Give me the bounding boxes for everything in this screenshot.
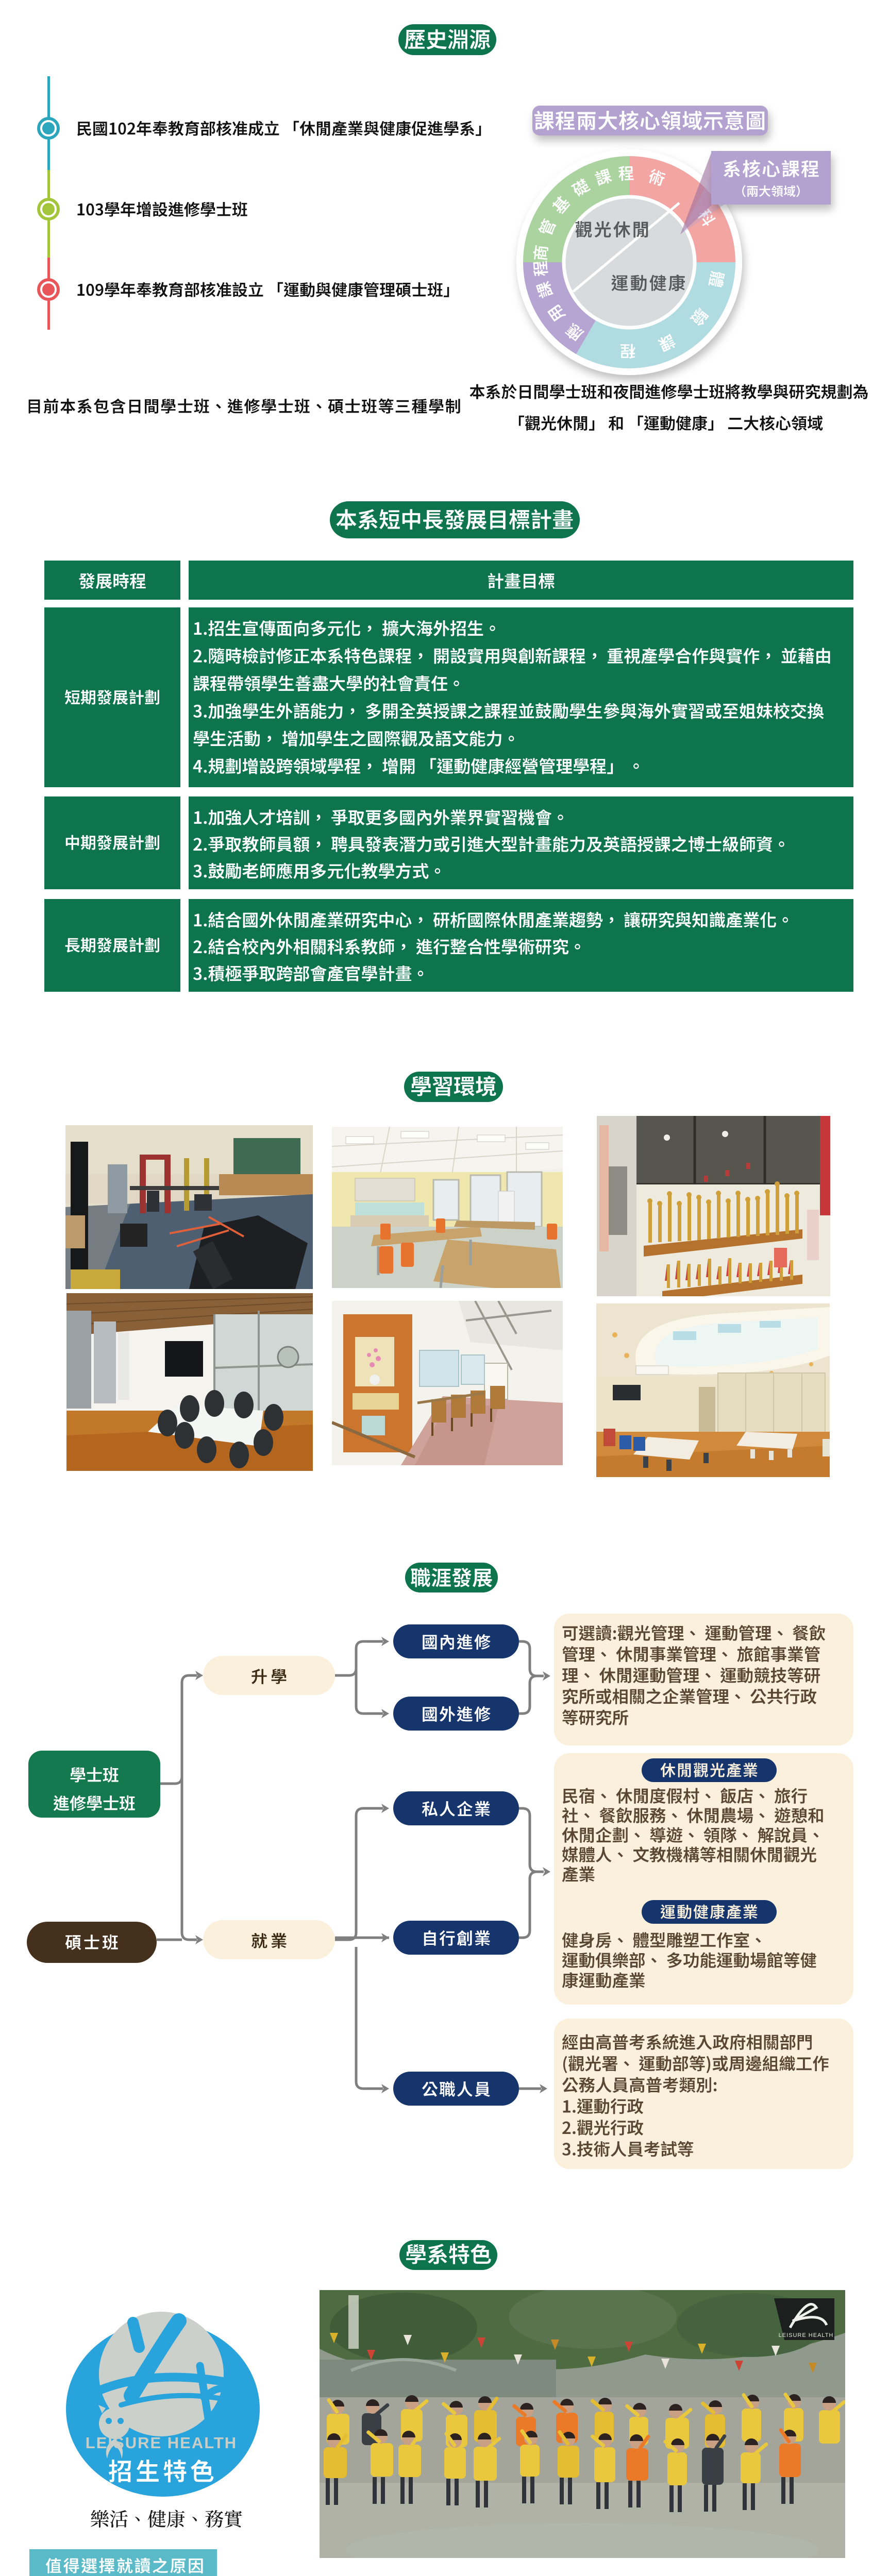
svg-text:LEISURE HEALTH: LEISURE HEALTH <box>779 2332 834 2338</box>
svg-text:LEISURE HEALTH: LEISURE HEALTH <box>86 2434 237 2452</box>
